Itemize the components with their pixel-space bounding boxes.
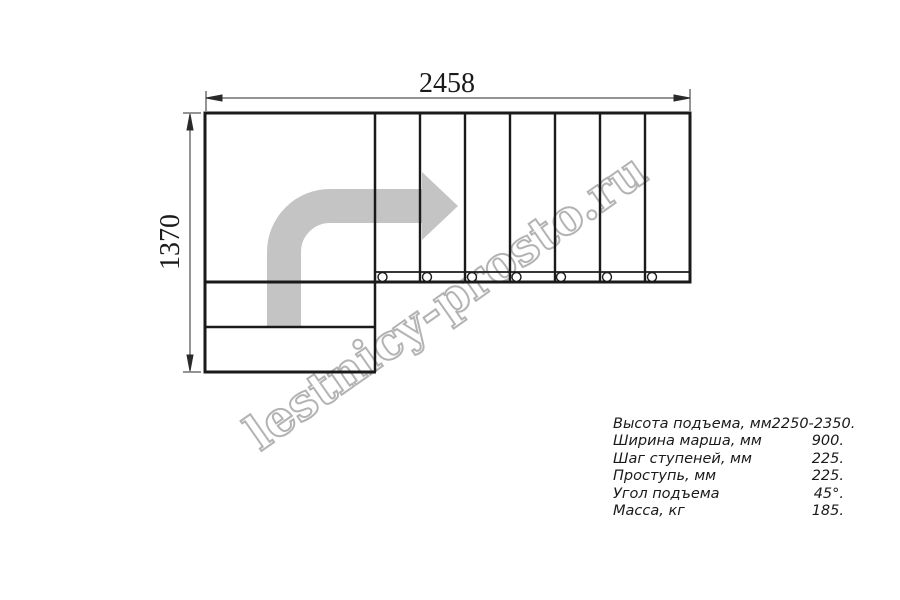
baluster-circle (557, 273, 566, 282)
spec-value: 900. (812, 433, 844, 450)
spec-value: 225. (812, 451, 844, 468)
spec-value: 45°. (814, 486, 844, 503)
dimension-arrow-right-icon (674, 95, 690, 101)
baluster-circle (468, 273, 477, 282)
spec-row-rise-angle: Угол подъема 45°. (613, 486, 844, 503)
spec-label: Масса, кг (613, 503, 685, 520)
spec-value: 185. (812, 503, 844, 520)
spec-label: Ширина марша, мм (613, 433, 762, 450)
spec-label: Проступь, мм (613, 468, 716, 485)
spec-table: Высота подъема, мм 2250-2350. Ширина мар… (613, 416, 844, 520)
spec-row-flight-width: Ширина марша, мм 900. (613, 433, 844, 450)
dimension-arrow-up-icon (187, 114, 193, 130)
spec-label: Угол подъема (613, 486, 720, 503)
baluster-circle (512, 273, 521, 282)
spec-row-tread: Проступь, мм 225. (613, 468, 844, 485)
baluster-circle (603, 273, 612, 282)
baluster-circle (648, 273, 657, 282)
baluster-circle (423, 273, 432, 282)
staircase-drawing-page: lestnicy-prosto.ru (0, 0, 900, 600)
baluster-circle (378, 273, 387, 282)
dimension-arrow-left-icon (206, 95, 222, 101)
top-dimension-label: 2458 (419, 68, 475, 99)
spec-row-rise-height: Высота подъема, мм 2250-2350. (613, 416, 844, 433)
spec-label: Шаг ступеней, мм (613, 451, 752, 468)
dimension-arrow-down-icon (187, 355, 193, 371)
left-dimension-label: 1370 (155, 214, 186, 270)
spec-value: 2250-2350. (772, 416, 856, 433)
spec-label: Высота подъема, мм (613, 416, 772, 433)
spec-row-mass: Масса, кг 185. (613, 503, 844, 520)
direction-arrow-head (422, 172, 458, 240)
spec-value: 225. (812, 468, 844, 485)
spec-row-step-pitch: Шаг ступеней, мм 225. (613, 451, 844, 468)
